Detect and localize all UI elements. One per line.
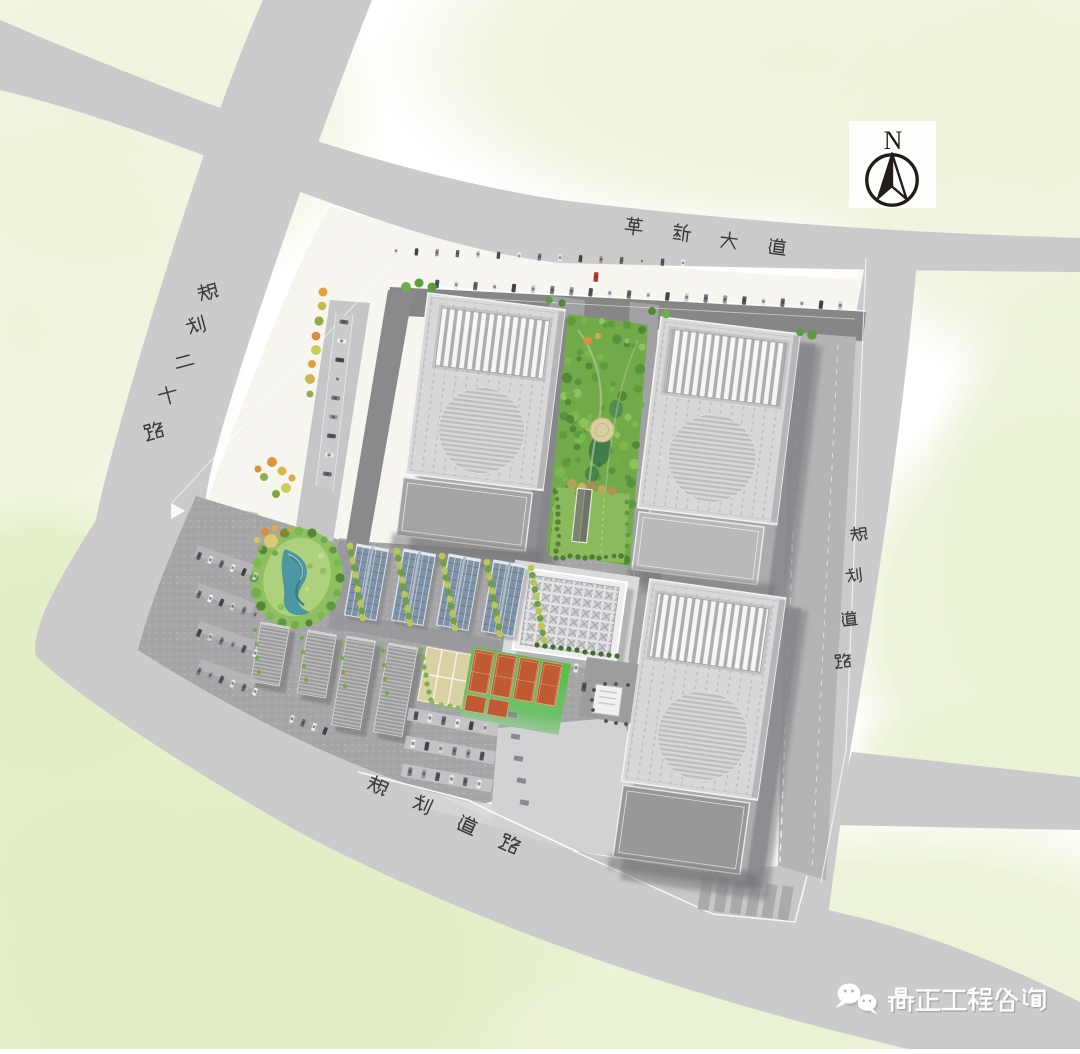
svg-text:N: N [884, 126, 903, 155]
